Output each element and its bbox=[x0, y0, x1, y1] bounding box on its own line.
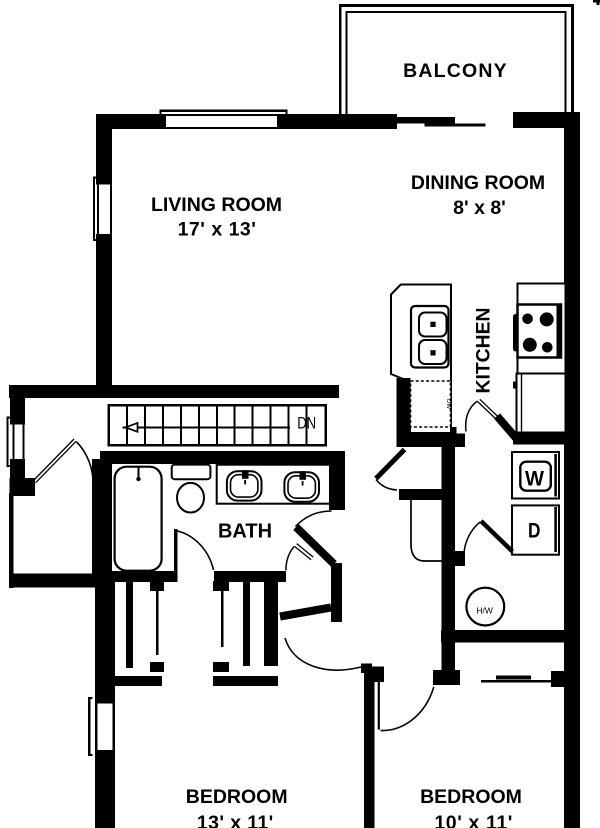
svg-text:DINING ROOM: DINING ROOM bbox=[411, 172, 545, 194]
svg-text:DW: DW bbox=[445, 399, 451, 409]
svg-text:13' x 11': 13' x 11' bbox=[197, 812, 274, 828]
svg-text:LIVING ROOM: LIVING ROOM bbox=[151, 194, 282, 216]
svg-text:DN: DN bbox=[297, 414, 316, 433]
svg-text:D: D bbox=[528, 519, 541, 542]
svg-text:17' x 13': 17' x 13' bbox=[178, 219, 257, 241]
svg-text:BALCONY: BALCONY bbox=[403, 60, 508, 82]
svg-text:BATH: BATH bbox=[218, 521, 272, 543]
svg-text:KITCHEN: KITCHEN bbox=[473, 308, 495, 394]
svg-text:BEDROOM: BEDROOM bbox=[420, 786, 522, 808]
svg-text:10' x 11': 10' x 11' bbox=[434, 812, 513, 828]
svg-text:8' x 8': 8' x 8' bbox=[453, 197, 506, 219]
svg-text:W: W bbox=[525, 467, 544, 490]
svg-text:BEDROOM: BEDROOM bbox=[186, 786, 288, 808]
svg-text:H/W: H/W bbox=[476, 606, 493, 616]
